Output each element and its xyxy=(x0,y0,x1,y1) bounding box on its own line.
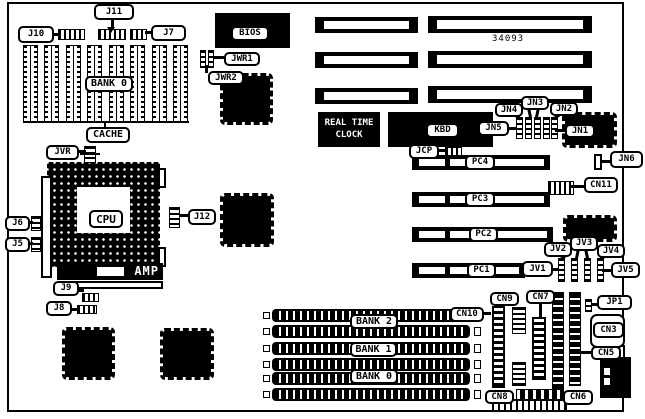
label-cn9: CN9 xyxy=(490,292,519,306)
label-jn3: JN3 xyxy=(521,96,549,110)
cn11-header xyxy=(548,181,574,195)
simm-latch xyxy=(263,375,270,382)
voltage-regulator xyxy=(41,176,52,278)
simm-latch xyxy=(263,345,270,352)
isa-slot xyxy=(315,88,418,104)
pointer-line xyxy=(205,65,208,73)
label-jv1: JV1 xyxy=(522,261,553,277)
jn-jumper xyxy=(534,117,541,139)
simm-latch xyxy=(474,374,481,383)
label-j10: J10 xyxy=(18,26,54,43)
j8-jumper xyxy=(77,305,97,314)
label-kbd: KBD xyxy=(426,123,459,138)
simm-latch xyxy=(263,361,270,368)
label-jwr1: JWR1 xyxy=(224,52,260,66)
label-bank0-simm: BANK 0 xyxy=(350,369,398,384)
label-cn6: CN6 xyxy=(563,390,593,405)
isa-slot xyxy=(315,52,418,68)
qfp-chip xyxy=(220,193,274,247)
label-bank1: BANK 1 xyxy=(350,342,397,357)
label-j12: J12 xyxy=(188,209,216,225)
label-jn1: JN1 xyxy=(565,124,595,138)
label-j8: J8 xyxy=(46,301,72,316)
label-jn4: JN4 xyxy=(495,103,523,117)
label-jwr2: JWR2 xyxy=(208,71,244,85)
simm-latch xyxy=(474,327,481,336)
label-jv2: JV2 xyxy=(544,242,572,257)
jv-jumper xyxy=(571,258,578,282)
dip-chip xyxy=(44,45,59,122)
label-pc3: PC3 xyxy=(465,192,495,207)
motherboard-layout-diagram: REAL TIME CLOCK 34093 AMP J10J11J7BANK 0… xyxy=(0,0,645,419)
j9-jumper xyxy=(82,293,99,302)
qfp-chip xyxy=(160,328,214,380)
label-pc2: PC2 xyxy=(469,227,498,242)
pointer-line xyxy=(111,19,114,29)
dip-chip xyxy=(23,45,38,122)
cn7-header xyxy=(532,317,546,380)
label-j9: J9 xyxy=(53,281,79,296)
jvr-trace xyxy=(80,153,100,155)
socket-tab xyxy=(158,168,166,188)
pin-header xyxy=(552,292,564,390)
label-bank0-cache: BANK 0 xyxy=(85,76,133,92)
part-number: 34093 xyxy=(492,34,524,44)
label-j6: J6 xyxy=(5,216,30,231)
dip-chip xyxy=(152,45,167,122)
label-pc4: PC4 xyxy=(465,155,495,170)
label-cpu: CPU xyxy=(89,210,123,228)
isa-slot xyxy=(428,51,592,68)
label-jn6: JN6 xyxy=(610,151,643,168)
simm-latch xyxy=(474,344,481,353)
j10-jumper xyxy=(58,29,85,40)
label-cn3: CN3 xyxy=(593,322,624,338)
jv-jumper xyxy=(558,258,565,282)
isa-slot xyxy=(315,17,418,33)
port-notch xyxy=(604,368,610,375)
label-cn5: CN5 xyxy=(591,346,621,360)
jn-jumper xyxy=(543,117,550,139)
label-cn10: CN10 xyxy=(450,307,484,322)
jn-jumper xyxy=(551,117,558,139)
label-cache: CACHE xyxy=(86,127,130,143)
cache-brace xyxy=(23,121,189,123)
label-j11: J11 xyxy=(94,4,134,20)
cn9-header xyxy=(492,306,505,388)
label-bios: BIOS xyxy=(231,26,269,41)
pointer-line xyxy=(539,303,542,318)
label-j7: J7 xyxy=(151,25,186,41)
simm-latch xyxy=(263,391,270,398)
simm-socket xyxy=(272,388,470,401)
label-jn5: JN5 xyxy=(478,121,509,136)
label-cn11: CN11 xyxy=(584,177,618,193)
label-cn8: CN8 xyxy=(485,390,514,404)
amp-label: AMP xyxy=(134,265,159,277)
simm-latch xyxy=(263,312,270,319)
amp-connector: AMP xyxy=(57,263,163,280)
pin-header xyxy=(569,292,581,386)
label-jv3: JV3 xyxy=(570,236,598,251)
simm-latch xyxy=(263,328,270,335)
pin-header xyxy=(512,362,526,386)
dip-chip xyxy=(66,45,81,122)
qfp-chip xyxy=(62,327,115,380)
pointer-line xyxy=(571,185,585,188)
jwr2-jumper xyxy=(208,50,214,68)
label-jv4: JV4 xyxy=(597,244,625,258)
isa-slot xyxy=(428,16,592,33)
jcp-jumper xyxy=(445,147,462,156)
label-jp1: JP1 xyxy=(597,295,632,310)
label-jv5: JV5 xyxy=(611,262,640,278)
label-j5: J5 xyxy=(5,237,30,252)
label-jcp: JCP xyxy=(409,144,439,159)
jn-jumper xyxy=(525,117,532,139)
pin-header xyxy=(512,307,526,334)
simm-latch xyxy=(474,360,481,369)
dip-chip xyxy=(173,45,188,122)
label-pc1: PC1 xyxy=(467,263,496,278)
label-jn2: JN2 xyxy=(550,102,578,116)
real-time-clock-chip: REAL TIME CLOCK xyxy=(318,112,380,147)
jv-jumper xyxy=(584,258,591,282)
label-jvr: JVR xyxy=(46,145,79,160)
simm-latch xyxy=(474,390,481,399)
label-cn7: CN7 xyxy=(526,290,555,304)
isa-slot xyxy=(428,86,592,103)
amp-connector-segment xyxy=(97,267,124,276)
port-notch xyxy=(604,378,610,385)
label-bank2: BANK 2 xyxy=(350,314,398,329)
j12-jumper xyxy=(169,207,180,228)
